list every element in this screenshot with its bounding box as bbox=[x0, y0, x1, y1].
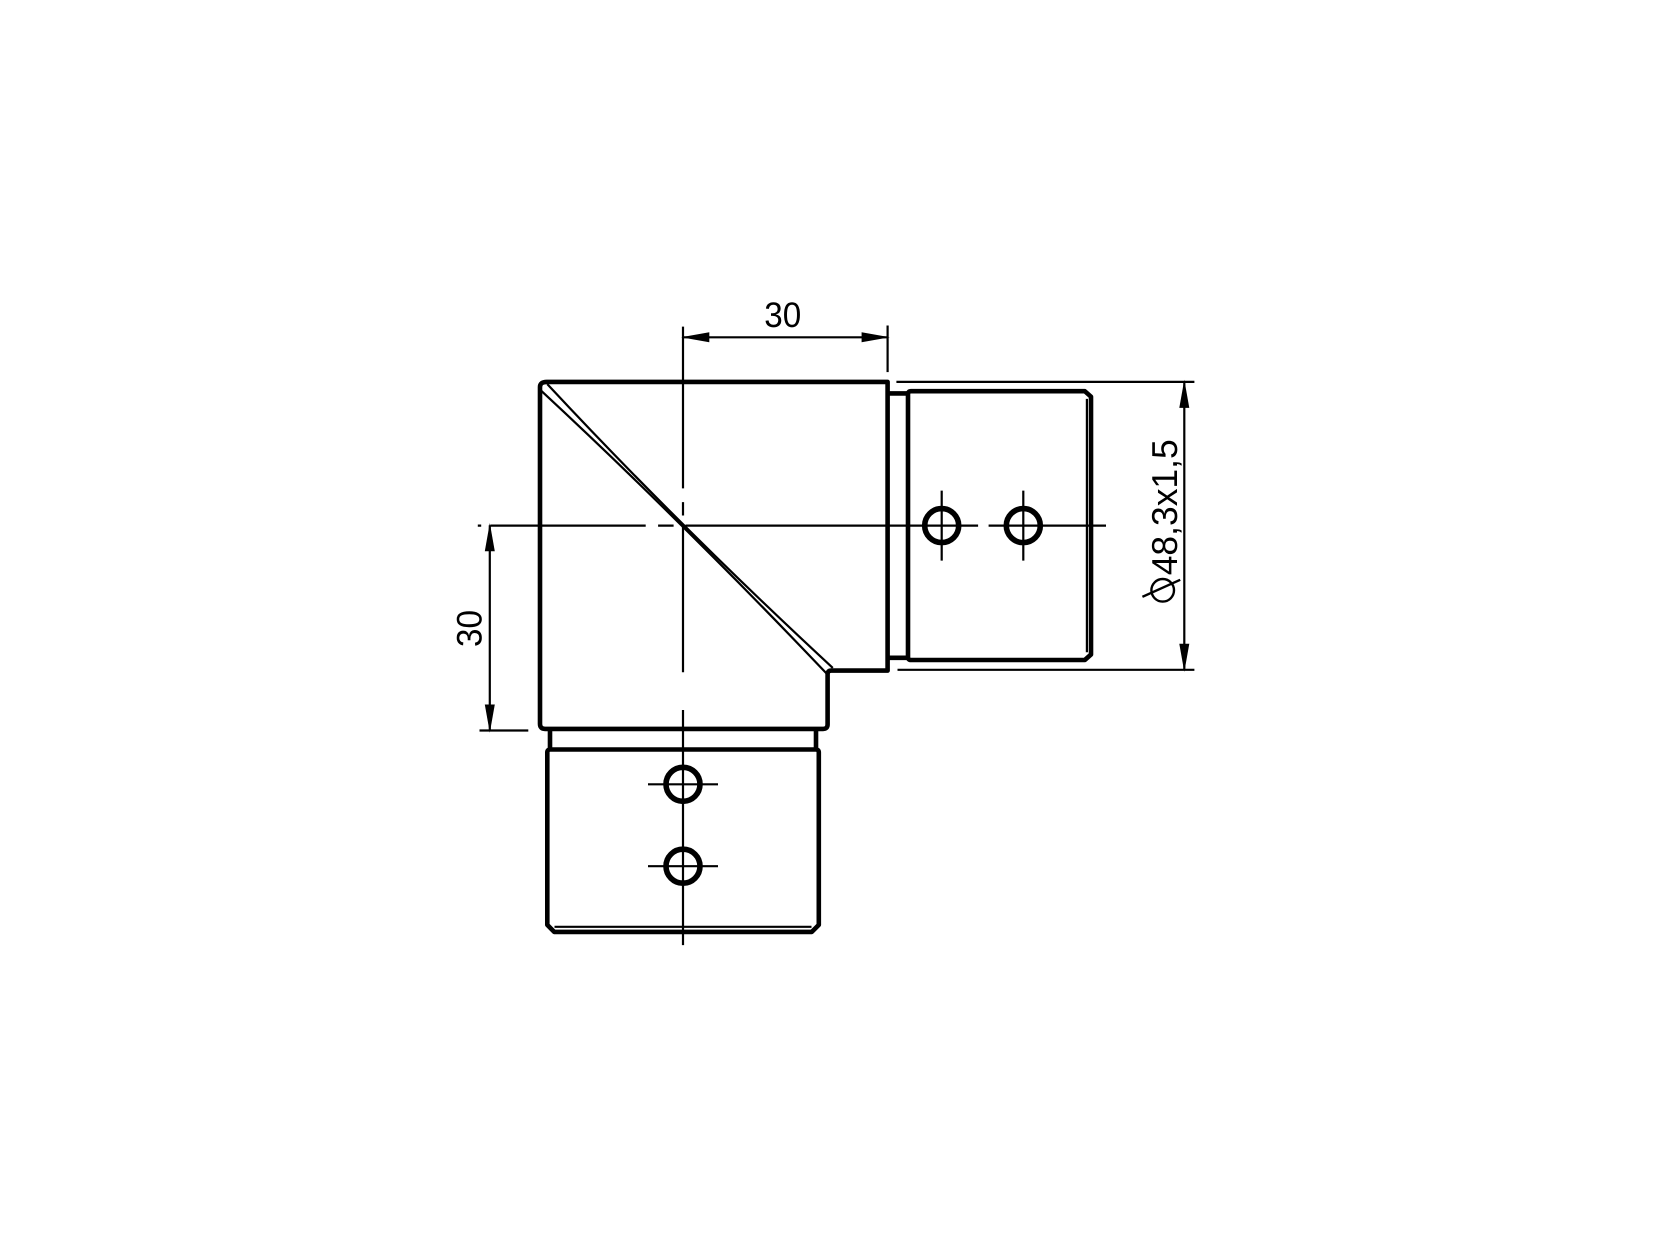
svg-text:30: 30 bbox=[449, 610, 489, 647]
svg-text:48,3x1,5: 48,3x1,5 bbox=[1144, 439, 1185, 575]
svg-text:30: 30 bbox=[764, 295, 801, 335]
